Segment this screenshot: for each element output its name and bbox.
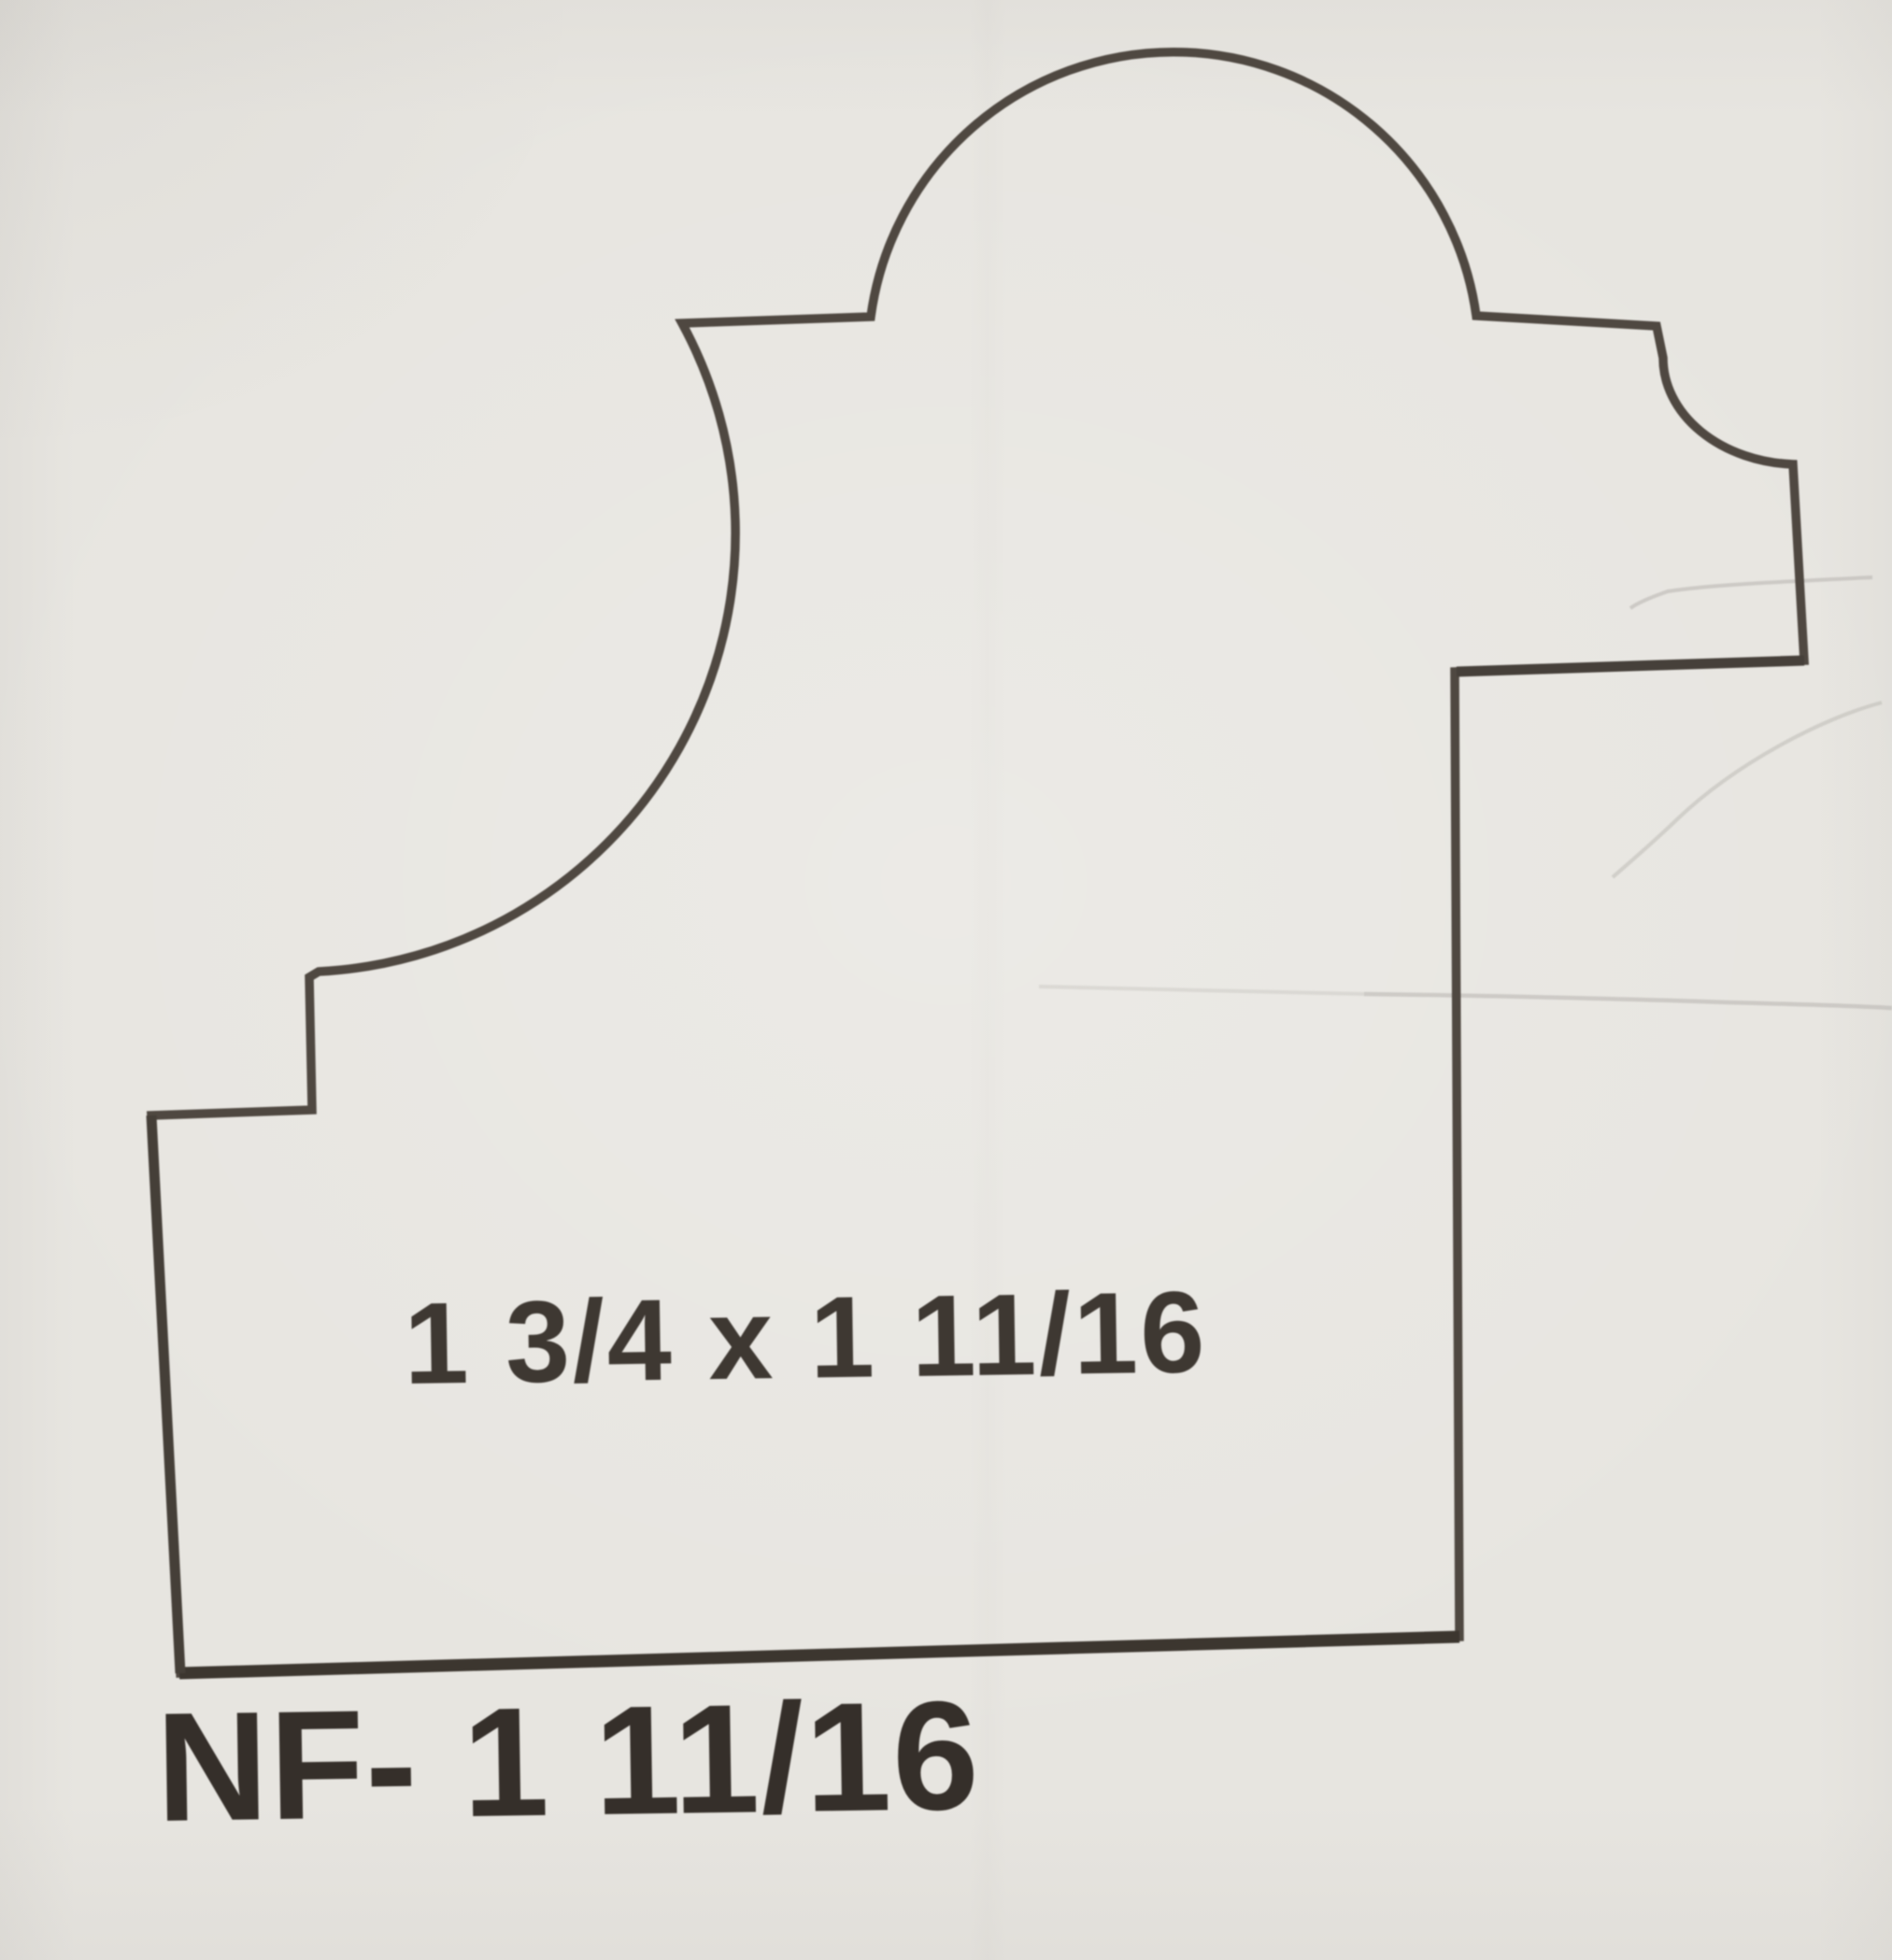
- svg-text:1 3/4 x 1 11/16: 1 3/4 x 1 11/16: [403, 1268, 1207, 1409]
- svg-text:NF- 1 11/16: NF- 1 11/16: [155, 1669, 981, 1854]
